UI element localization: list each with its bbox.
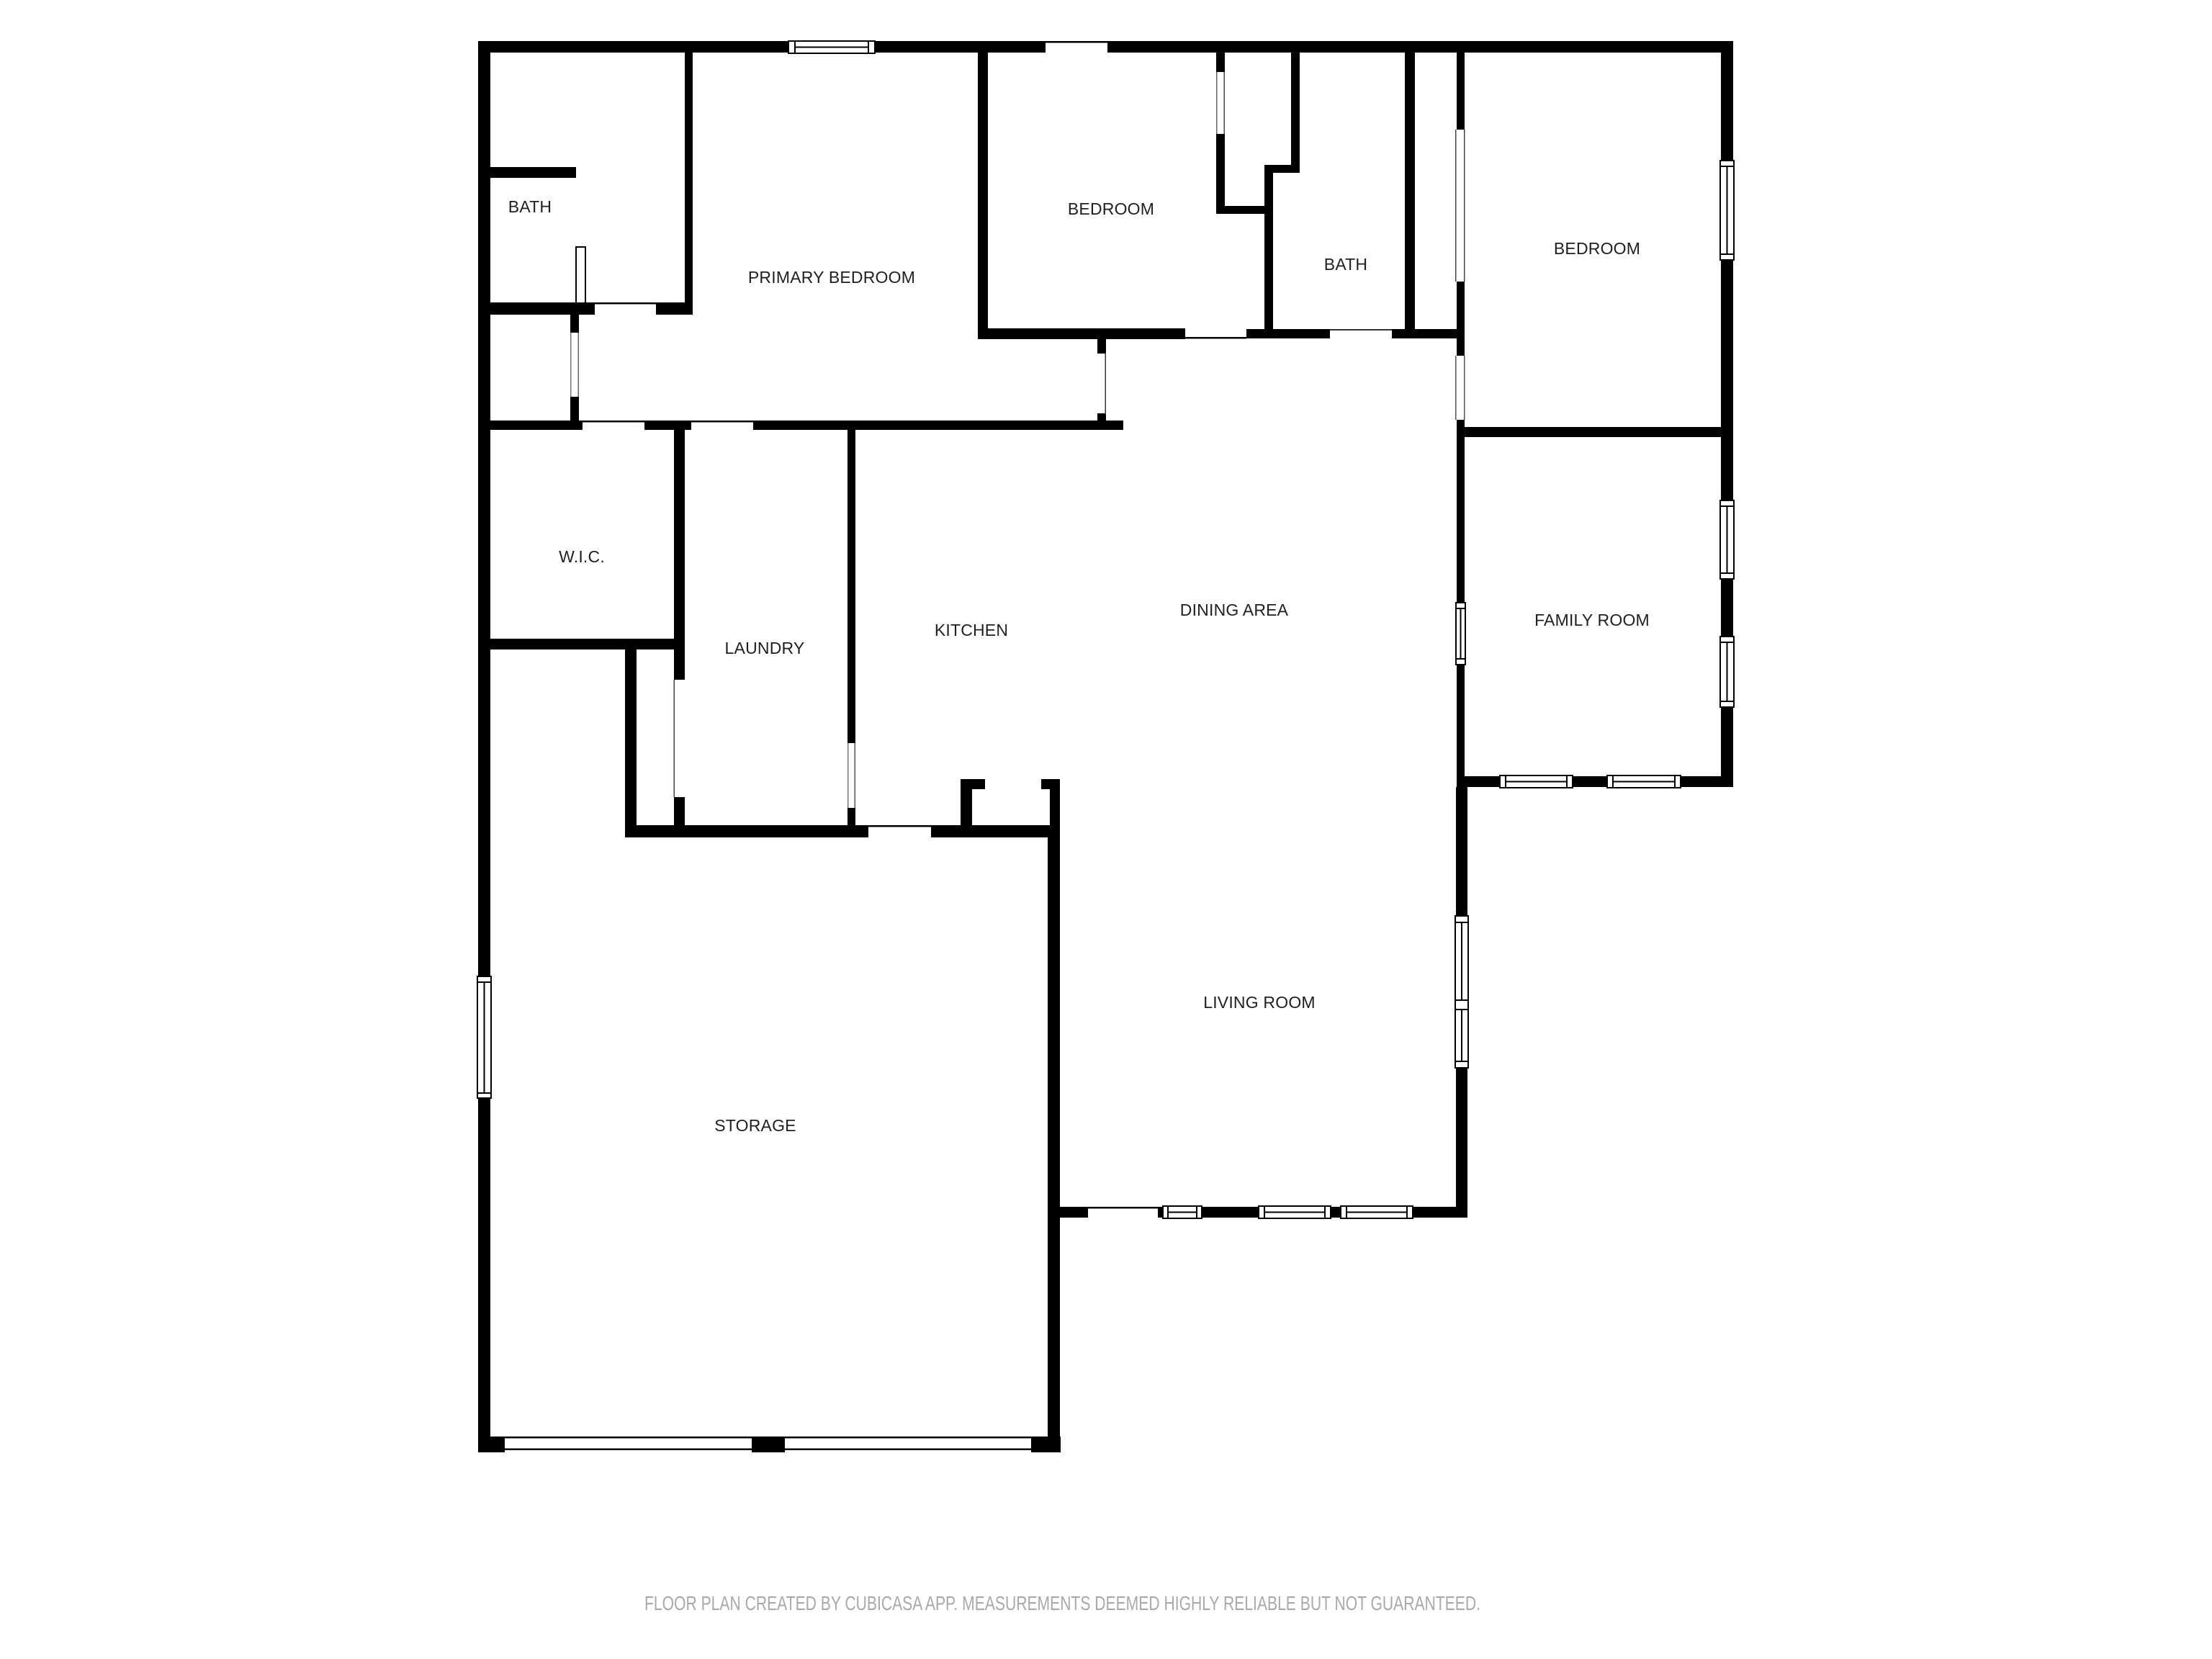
svg-text:W.I.C.: W.I.C. [559, 547, 605, 566]
svg-text:DINING AREA: DINING AREA [1180, 601, 1289, 619]
svg-text:FLOOR PLAN CREATED BY CUBICASA: FLOOR PLAN CREATED BY CUBICASA APP. MEAS… [644, 1592, 1480, 1614]
svg-text:LAUNDRY: LAUNDRY [725, 639, 805, 657]
svg-text:PRIMARY BEDROOM: PRIMARY BEDROOM [748, 268, 915, 287]
svg-text:STORAGE: STORAGE [714, 1116, 796, 1135]
svg-text:BEDROOM: BEDROOM [1554, 239, 1640, 258]
svg-text:BATH: BATH [508, 197, 552, 216]
svg-text:BEDROOM: BEDROOM [1068, 199, 1154, 218]
svg-text:FAMILY ROOM: FAMILY ROOM [1534, 611, 1650, 629]
svg-text:BATH: BATH [1324, 255, 1367, 274]
svg-text:LIVING ROOM: LIVING ROOM [1203, 993, 1316, 1012]
svg-text:KITCHEN: KITCHEN [935, 621, 1008, 639]
